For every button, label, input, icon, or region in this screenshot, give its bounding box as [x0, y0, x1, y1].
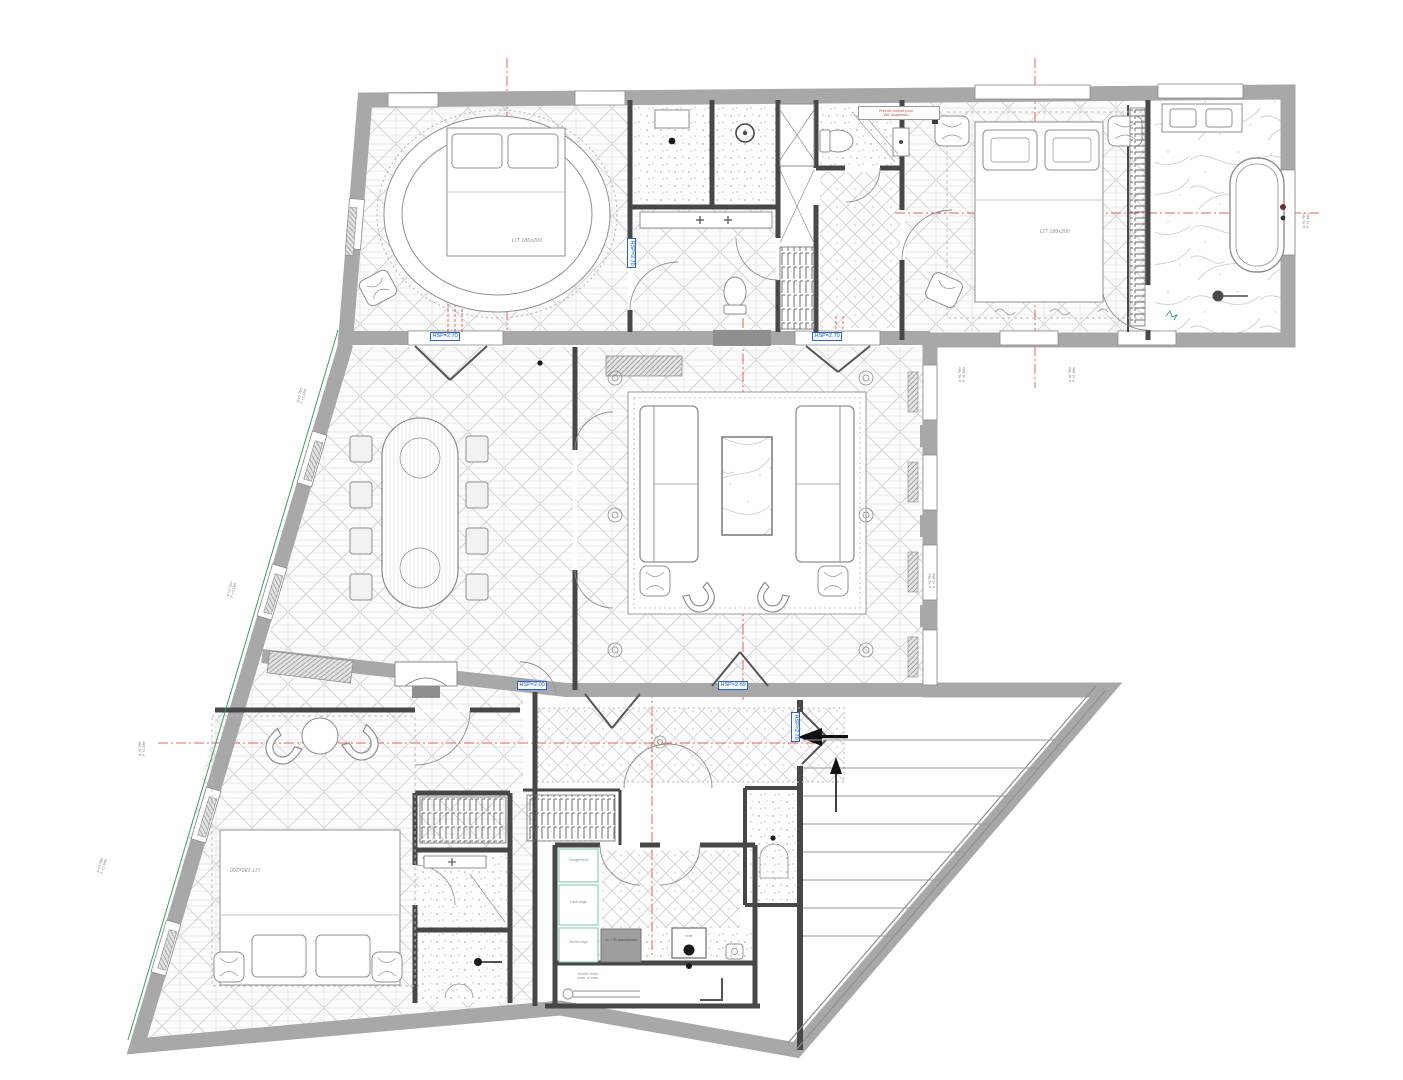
bed-size-label-1: LIT 180x200 — [512, 238, 542, 244]
red-note-line-2: WC suspendu — [883, 112, 908, 117]
cabinet-label-3: Sèche-linge — [560, 940, 597, 944]
window-tag-8: A +0.79mF +2.19m — [928, 573, 936, 588]
ceiling-height-label-entry: HSP=2.70 — [791, 712, 800, 742]
ceiling-height-label-living-low: HSP=2.69 — [718, 681, 748, 690]
cabinet-label-2: Lave-linge — [560, 900, 597, 904]
annex-note-line-2: évac. à créer — [556, 976, 620, 980]
living-room — [606, 356, 873, 657]
window-tag-3: A +0.79mF +2.19m — [1302, 213, 1310, 228]
bed-size-label-2: LIT 180x200 — [1040, 229, 1070, 235]
plan-drawing — [0, 0, 1403, 1080]
red-annotation-note: Prévoir renfort pour WC suspendu — [858, 106, 940, 120]
cabinet-label-1: Rangement — [560, 858, 597, 862]
washer-label: LL + SL superposés — [601, 938, 641, 942]
ceiling-height-label-living-door: HSP=2.70 — [812, 332, 842, 341]
sink-label: évier — [676, 934, 702, 938]
bed-size-label-3: LIT 180x200 — [230, 866, 260, 872]
annex-note: arrivée d'eau évac. à créer — [556, 972, 620, 980]
ceiling-height-label-dining-low: HSP=2.00 — [517, 681, 547, 690]
ceiling-height-label-corridor: HSP=2.70 — [627, 238, 636, 268]
window-tag-1: A +0.79mF +2.19m — [958, 367, 966, 382]
ceiling-height-label-dining-door: HSP=2.70 — [430, 332, 460, 341]
window-tag-6: A +0.79mF +2.19m — [138, 741, 146, 756]
floor-plan-page: LIT 180x200 LIT 180x200 LIT 180x200 HSP=… — [0, 0, 1403, 1080]
window-tag-2: A +0.79mF +2.19m — [1068, 367, 1076, 382]
